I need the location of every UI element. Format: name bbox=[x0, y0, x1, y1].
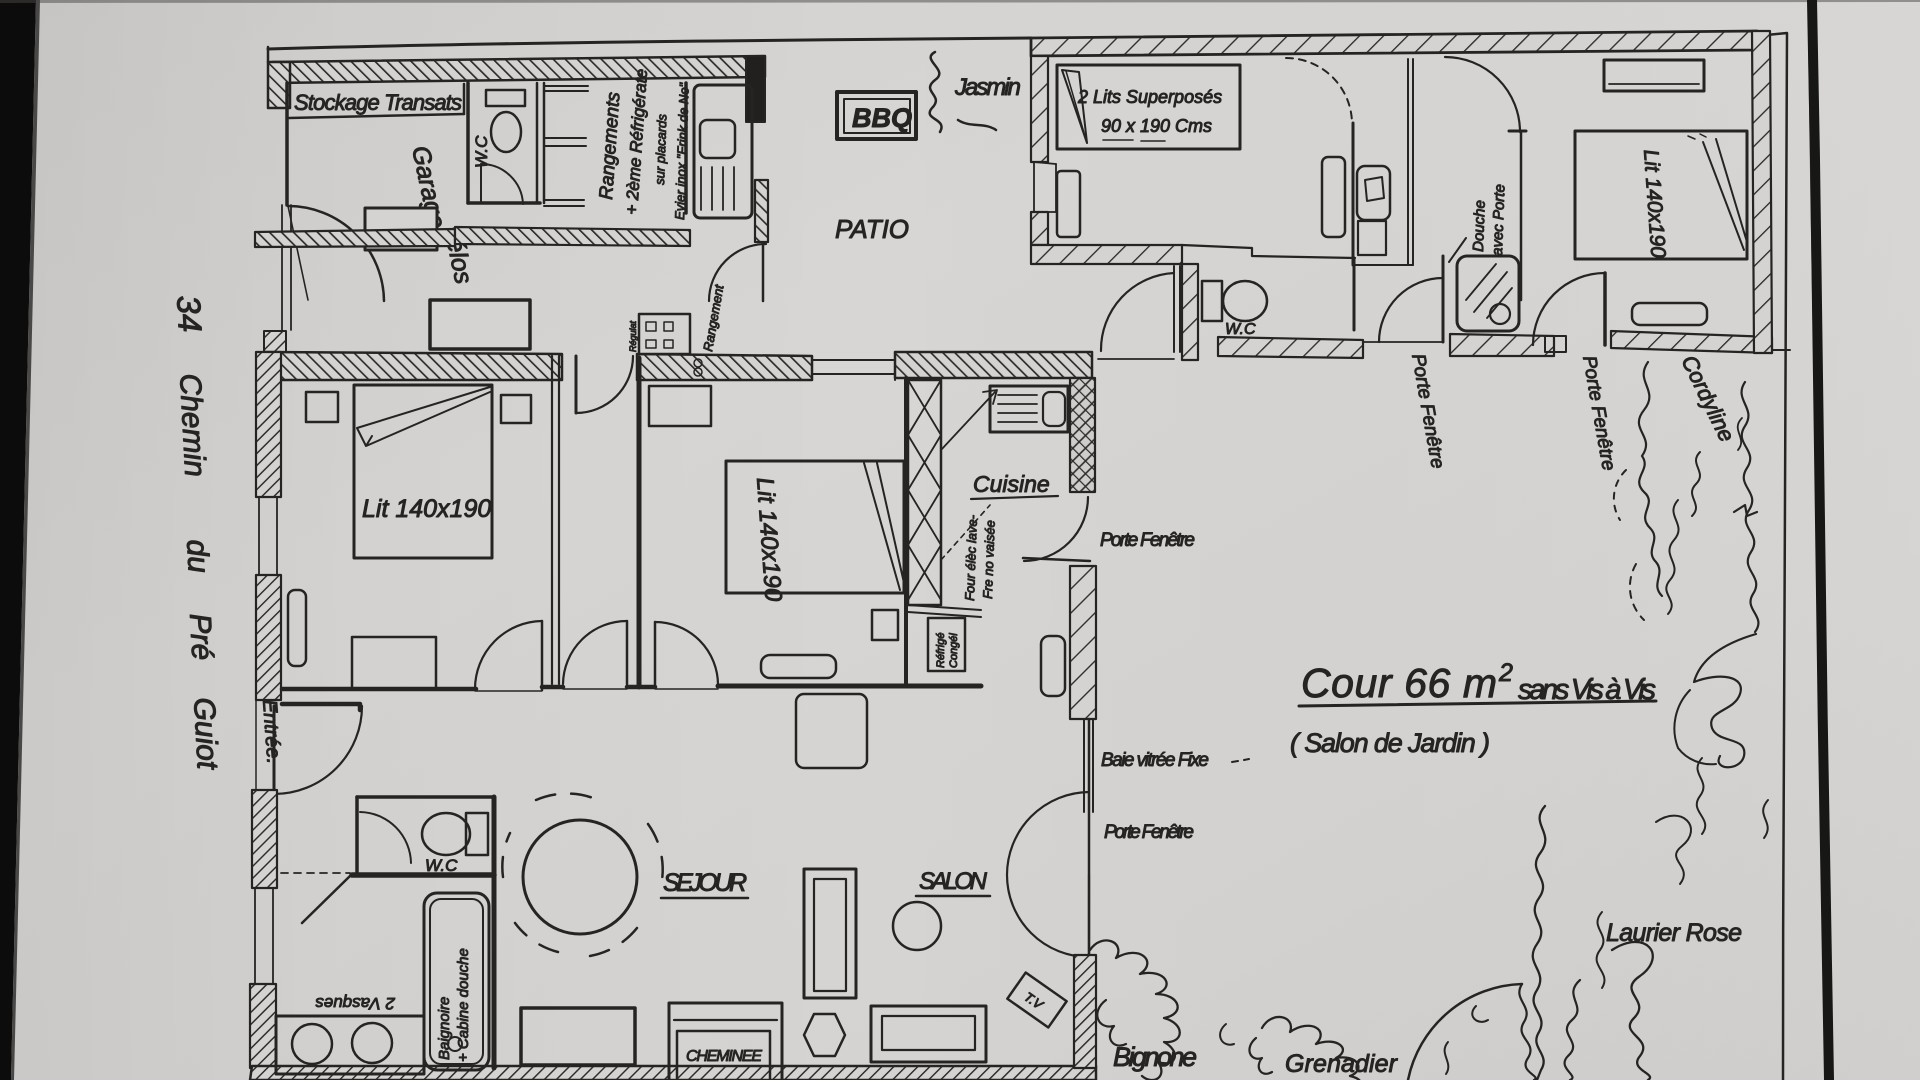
svg-text:( Salon de Jardin ): ( Salon de Jardin ) bbox=[1290, 728, 1490, 758]
svg-text:Réfrigé: Réfrigé bbox=[935, 633, 947, 668]
svg-text:Lit 140x190: Lit 140x190 bbox=[362, 495, 491, 523]
svg-text:Cour 66 m: Cour 66 m bbox=[1301, 660, 1497, 706]
svg-text:2 Vasques: 2 Vasques bbox=[315, 994, 396, 1013]
svg-text:du: du bbox=[180, 539, 215, 574]
svg-text:Entrée.: Entrée. bbox=[258, 699, 284, 765]
svg-text:Chemin: Chemin bbox=[173, 373, 211, 478]
svg-text:SALON: SALON bbox=[919, 868, 988, 895]
svg-text:avec Porte: avec Porte bbox=[1489, 184, 1508, 256]
svg-text:34: 34 bbox=[170, 294, 209, 333]
svg-text:2 Lits Superposés: 2 Lits Superposés bbox=[1077, 87, 1222, 107]
svg-text:BBQ: BBQ bbox=[852, 103, 912, 133]
svg-text:+ Cabine douche: + Cabine douche bbox=[455, 948, 472, 1062]
svg-text:PATIO: PATIO bbox=[835, 214, 911, 244]
svg-text:Four élèc lave-: Four élèc lave- bbox=[962, 514, 980, 601]
svg-text:W.C: W.C bbox=[1225, 321, 1256, 338]
svg-text:Guiot: Guiot bbox=[187, 697, 224, 772]
svg-text:CHEMINEE: CHEMINEE bbox=[686, 1048, 762, 1065]
svg-text:Porte Fenêtre: Porte Fenêtre bbox=[1100, 530, 1195, 551]
svg-text:W.C: W.C bbox=[425, 856, 458, 875]
svg-text:Laurier Rose: Laurier Rose bbox=[1606, 919, 1742, 947]
svg-text:Fre no vaisée: Fre no vaisée bbox=[980, 520, 998, 599]
svg-text:Bignone: Bignone bbox=[1113, 1042, 1197, 1072]
svg-text:Stockage Transats: Stockage Transats bbox=[294, 90, 462, 115]
svg-text:Pré: Pré bbox=[183, 613, 218, 661]
svg-text:Baie vitrée Fixe: Baie vitrée Fixe bbox=[1101, 750, 1209, 771]
svg-text:Douche: Douche bbox=[1470, 200, 1489, 252]
svg-text:Cuisine: Cuisine bbox=[973, 471, 1050, 497]
svg-text:90 x 190 Cms: 90 x 190 Cms bbox=[1101, 116, 1212, 136]
svg-text:sur placards: sur placards bbox=[652, 113, 669, 185]
svg-text:2: 2 bbox=[1498, 659, 1513, 687]
svg-text:SEJOUR: SEJOUR bbox=[663, 869, 747, 897]
svg-text:Porte Fenêtre: Porte Fenêtre bbox=[1104, 822, 1194, 843]
svg-text:Jasmin: Jasmin bbox=[954, 74, 1021, 101]
svg-text:Congél: Congél bbox=[948, 633, 960, 668]
svg-text:Régulat: Régulat bbox=[628, 320, 638, 352]
svg-text:Grenadier: Grenadier bbox=[1285, 1050, 1399, 1078]
